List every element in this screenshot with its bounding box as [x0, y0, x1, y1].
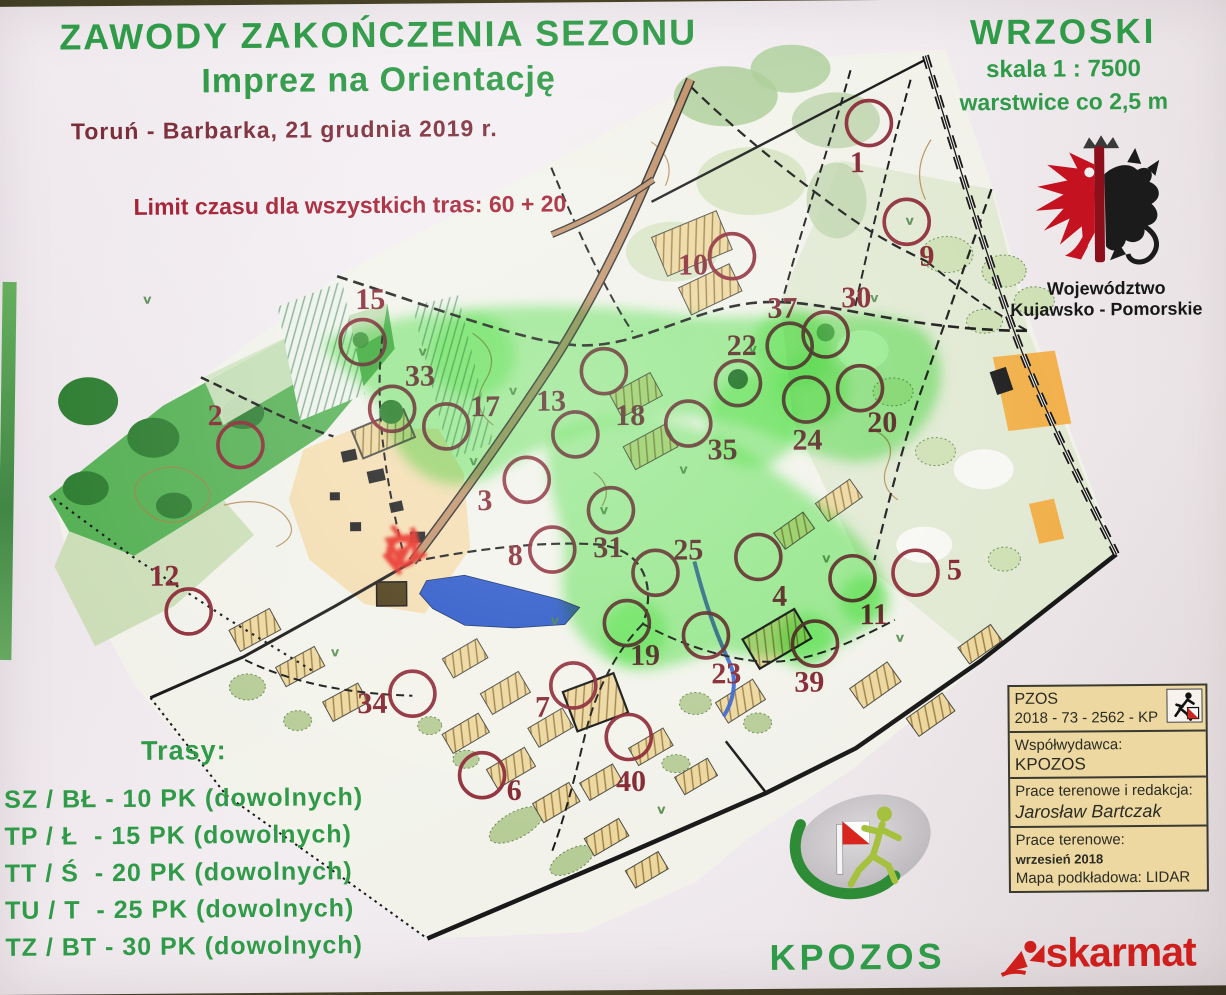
- control-number-40: 40: [616, 765, 646, 798]
- course-item-sz-bl: SZ / BŁ - 10 PK (dowolnych): [4, 779, 424, 819]
- control-number-15: 15: [355, 283, 385, 316]
- eagle-half-icon: [1035, 152, 1095, 259]
- skarmat-logo: skarmat: [999, 926, 1196, 980]
- map-name: WRZOSKI: [938, 12, 1188, 54]
- course-item-tz-bt: TZ / BT - 30 PK (dowolnych): [5, 927, 425, 967]
- skarmat-wordmark: skarmat: [1045, 928, 1196, 976]
- event-title-line2: Imprez na Orientację: [28, 55, 728, 104]
- voivodeship-coat-of-arms: [1031, 134, 1168, 281]
- event-title: ZAWODY ZAKOŃCZENIA SEZONU Imprez na Orie…: [28, 9, 729, 104]
- map-credits-box: PZOS 2018 - 73 - 2562 - KP Współwydawca:…: [1007, 683, 1209, 893]
- control-number-10: 10: [678, 248, 708, 281]
- control-number-3: 3: [477, 484, 492, 517]
- course-item-tu-t: TU / T - 25 PK (dowolnych): [5, 890, 425, 930]
- map-contour-interval: warstwice co 2,5 m: [939, 86, 1189, 118]
- skarmat-mark-icon: [999, 927, 1045, 979]
- base-map-note: Mapa podkładowa: LIDAR: [1016, 868, 1202, 888]
- region-name-line2: Kujawsko - Pomorskie: [1000, 298, 1212, 321]
- control-number-6: 6: [507, 774, 522, 807]
- control-number-23: 23: [711, 657, 741, 690]
- credits-license-row: PZOS 2018 - 73 - 2562 - KP: [1009, 685, 1205, 733]
- course-item-tp-l: TP / Ł - 15 PK (dowolnych): [4, 816, 424, 856]
- svg-text:v: v: [143, 293, 152, 308]
- courses-heading: Trasy:: [4, 734, 364, 768]
- survey-date: wrzesień 2018: [1016, 849, 1202, 869]
- region-name-line1: Województwo: [1000, 277, 1212, 300]
- svg-text:v: v: [870, 291, 879, 306]
- svg-text:v: v: [905, 214, 914, 229]
- svg-text:v: v: [551, 614, 560, 629]
- control-number-30: 30: [841, 281, 871, 314]
- map-sheet: vv vv vv vv vv vv vv 1234567891011121315…: [0, 0, 1226, 995]
- credits-survey-row: Prace terenowe: wrzesień 2018 Mapa podkł…: [1010, 826, 1206, 891]
- time-limit-note: Limit czasu dla wszystkich tras: 60 + 20: [133, 190, 613, 221]
- courses-list: Trasy: SZ / BŁ - 10 PK (dowolnych) TP / …: [4, 734, 426, 967]
- control-number-7: 7: [535, 691, 550, 724]
- copublisher-label: Współwydawca:: [1015, 735, 1201, 755]
- control-number-12: 12: [149, 560, 179, 593]
- event-title-line1: ZAWODY ZAKOŃCZENIA SEZONU: [28, 9, 728, 60]
- region-name: Województwo Kujawsko - Pomorskie: [1000, 277, 1212, 321]
- fieldwork-author: Jarosław Bartczak: [1015, 800, 1201, 823]
- svg-text:v: v: [657, 803, 666, 818]
- photo-background: vv vv vv vv vv vv vv 1234567891011121315…: [0, 0, 1226, 984]
- survey-label: Prace terenowe:: [1016, 830, 1202, 850]
- svg-text:v: v: [331, 645, 340, 660]
- fieldwork-label: Prace terenowe i redakcja:: [1015, 781, 1201, 801]
- orienteering-runner-icon: [1166, 688, 1202, 722]
- kpozos-logo: [784, 788, 941, 905]
- map-scale: skala 1 : 7500: [938, 52, 1188, 88]
- event-date-location: Toruń - Barbarka, 21 grudnia 2019 r.: [71, 114, 631, 145]
- control-number-34: 34: [357, 687, 387, 720]
- control-number-8: 8: [508, 539, 523, 572]
- control-number-2: 2: [208, 399, 223, 432]
- svg-text:v: v: [896, 631, 905, 646]
- course-item-tt-s: TT / Ś - 20 PK (dowolnych): [5, 853, 425, 893]
- control-number-1: 1: [850, 146, 865, 179]
- credits-copublisher-row: Współwydawca: KPOZOS: [1010, 731, 1206, 779]
- copublisher-name: KPOZOS: [1015, 754, 1201, 774]
- map-title-block: WRZOSKI skala 1 : 7500 warstwice co 2,5 …: [938, 12, 1189, 118]
- credits-fieldwork-row: Prace terenowe i redakcja: Jarosław Bart…: [1010, 777, 1206, 828]
- kpozos-wordmark: KPOZOS: [769, 936, 945, 979]
- control-number-39: 39: [794, 665, 824, 698]
- control-number-5: 5: [947, 553, 962, 586]
- control-number-9: 9: [919, 240, 934, 273]
- lion-half-icon: [1104, 148, 1160, 262]
